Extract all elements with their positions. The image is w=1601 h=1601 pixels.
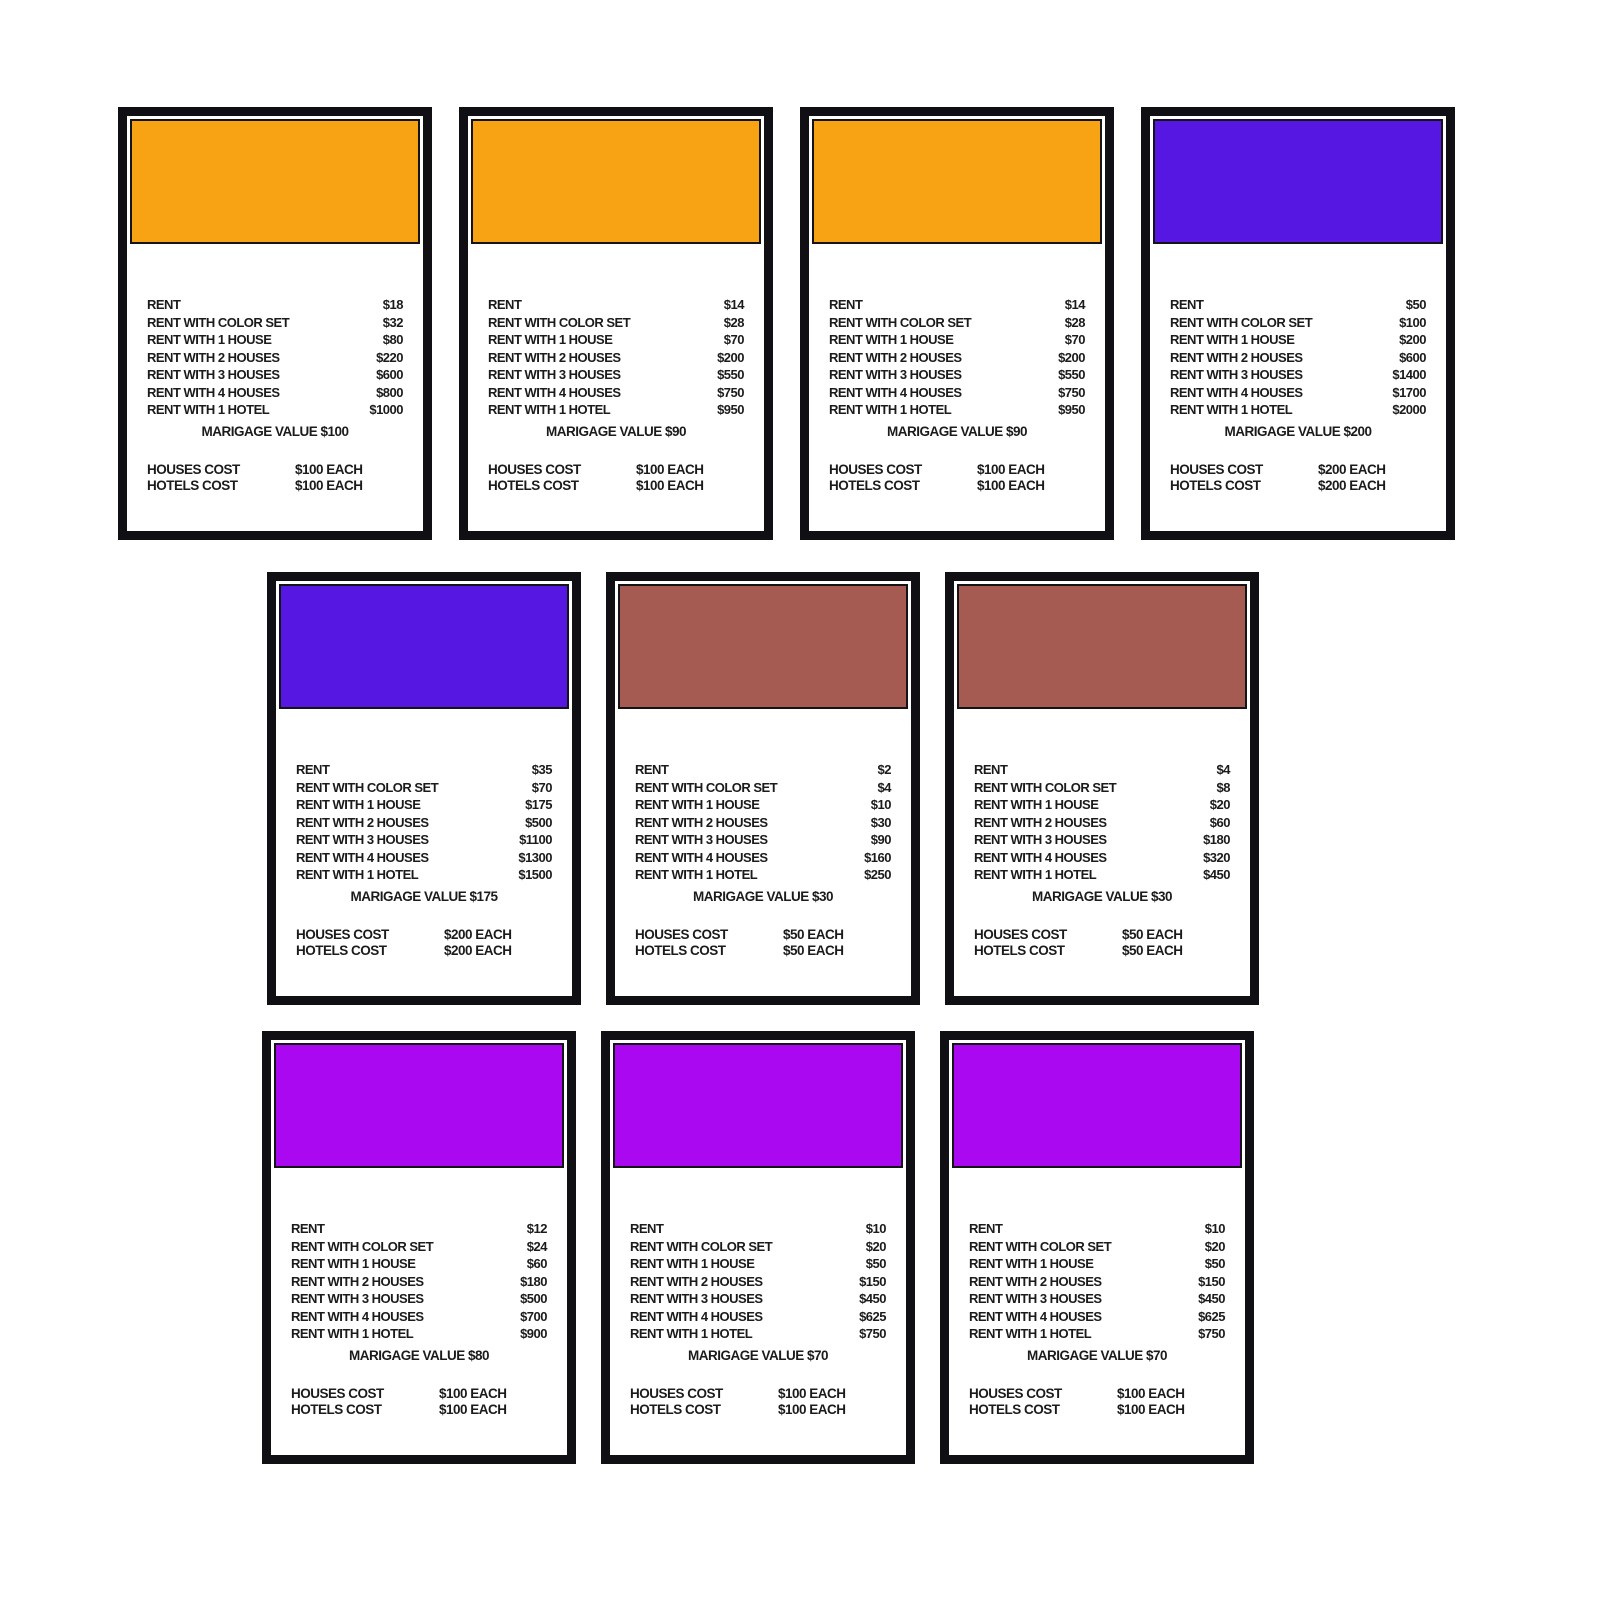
houses-cost-label: HOUSES COST — [635, 927, 783, 944]
mortgage-value-line: MARIGAGE VALUE $175 — [296, 889, 552, 905]
hotels-cost-label: HOTELS COST — [488, 478, 636, 495]
rent-row: RENT WITH COLOR SET $20 — [969, 1238, 1225, 1256]
rent-4-houses-label: RENT WITH 4 HOUSES — [291, 1308, 424, 1326]
rent-row: RENT WITH COLOR SET $20 — [630, 1238, 886, 1256]
houses-cost-value: $100 EACH — [636, 462, 704, 479]
rent-2-houses-value: $150 — [859, 1273, 886, 1291]
card-body: RENT $14 RENT WITH COLOR SET $28 RENT WI… — [468, 244, 764, 495]
rent-row: RENT WITH 4 HOUSES $800 — [147, 384, 403, 402]
rent-row: RENT $4 — [974, 761, 1230, 779]
rent-row: RENT WITH COLOR SET $24 — [291, 1238, 547, 1256]
rent-row: RENT WITH COLOR SET $100 — [1170, 314, 1426, 332]
hotels-cost-label: HOTELS COST — [829, 478, 977, 495]
houses-cost-row: HOUSES COST $50 EACH — [974, 927, 1230, 944]
mortgage-value-line: MARIGAGE VALUE $90 — [488, 424, 744, 440]
rent-value: $35 — [532, 761, 552, 779]
rent-1-hotel-label: RENT WITH 1 HOTEL — [1170, 401, 1292, 419]
rent-color-set-label: RENT WITH COLOR SET — [974, 779, 1116, 797]
rent-4-houses-value: $160 — [864, 849, 891, 867]
rent-row: RENT WITH 3 HOUSES $1400 — [1170, 366, 1426, 384]
rent-1-house-value: $200 — [1399, 331, 1426, 349]
hotels-cost-row: HOTELS COST $100 EACH — [969, 1402, 1225, 1419]
card-body: RENT $14 RENT WITH COLOR SET $28 RENT WI… — [809, 244, 1105, 495]
hotels-cost-label: HOTELS COST — [635, 943, 783, 960]
rent-3-houses-value: $90 — [871, 831, 891, 849]
rent-color-set-label: RENT WITH COLOR SET — [829, 314, 971, 332]
rent-4-houses-value: $1700 — [1392, 384, 1426, 402]
rent-color-set-label: RENT WITH COLOR SET — [1170, 314, 1312, 332]
rent-row: RENT WITH COLOR SET $8 — [974, 779, 1230, 797]
cost-table: HOUSES COST $100 EACH HOTELS COST $100 E… — [829, 462, 1085, 495]
rent-row: RENT WITH 1 HOUSE $10 — [635, 796, 891, 814]
hotels-cost-value: $100 EACH — [439, 1402, 507, 1419]
rent-4-houses-label: RENT WITH 4 HOUSES — [635, 849, 768, 867]
mortgage-value-line: MARIGAGE VALUE $30 — [635, 889, 891, 905]
rent-1-house-label: RENT WITH 1 HOUSE — [291, 1255, 415, 1273]
rent-3-houses-value: $500 — [520, 1290, 547, 1308]
rent-2-houses-value: $600 — [1399, 349, 1426, 367]
rent-row: RENT WITH 3 HOUSES $450 — [630, 1290, 886, 1308]
rent-row: RENT WITH 2 HOUSES $600 — [1170, 349, 1426, 367]
rent-1-hotel-label: RENT WITH 1 HOTEL — [291, 1325, 413, 1343]
rent-row: RENT WITH 2 HOUSES $500 — [296, 814, 552, 832]
hotels-cost-row: HOTELS COST $100 EACH — [291, 1402, 547, 1419]
rent-4-houses-label: RENT WITH 4 HOUSES — [974, 849, 1107, 867]
card-row-1: RENT $18 RENT WITH COLOR SET $32 RENT WI… — [118, 107, 1455, 540]
rent-1-house-value: $10 — [871, 796, 891, 814]
rent-row: RENT WITH 4 HOUSES $160 — [635, 849, 891, 867]
rent-2-houses-label: RENT WITH 2 HOUSES — [296, 814, 429, 832]
rent-1-house-value: $70 — [1065, 331, 1085, 349]
houses-cost-value: $100 EACH — [1117, 1386, 1185, 1403]
rent-color-set-value: $28 — [724, 314, 744, 332]
property-card: RENT $14 RENT WITH COLOR SET $28 RENT WI… — [459, 107, 773, 540]
rent-1-house-label: RENT WITH 1 HOUSE — [630, 1255, 754, 1273]
rent-row: RENT WITH 2 HOUSES $30 — [635, 814, 891, 832]
houses-cost-row: HOUSES COST $200 EACH — [1170, 462, 1426, 479]
rent-row: RENT WITH 1 HOTEL $1000 — [147, 401, 403, 419]
houses-cost-row: HOUSES COST $100 EACH — [488, 462, 744, 479]
rent-table: RENT $35 RENT WITH COLOR SET $70 RENT WI… — [296, 761, 552, 884]
card-body: RENT $4 RENT WITH COLOR SET $8 RENT WITH… — [954, 709, 1250, 960]
rent-row: RENT WITH 1 HOTEL $900 — [291, 1325, 547, 1343]
rent-1-house-label: RENT WITH 1 HOUSE — [147, 331, 271, 349]
houses-cost-row: HOUSES COST $50 EACH — [635, 927, 891, 944]
rent-1-house-label: RENT WITH 1 HOUSE — [488, 331, 612, 349]
rent-row: RENT WITH 4 HOUSES $750 — [488, 384, 744, 402]
rent-1-hotel-value: $750 — [1198, 1325, 1225, 1343]
card-body: RENT $12 RENT WITH COLOR SET $24 RENT WI… — [271, 1168, 567, 1419]
cost-table: HOUSES COST $50 EACH HOTELS COST $50 EAC… — [635, 927, 891, 960]
houses-cost-value: $100 EACH — [778, 1386, 846, 1403]
rent-value: $12 — [527, 1220, 547, 1238]
rent-value: $10 — [1205, 1220, 1225, 1238]
rent-row: RENT WITH 1 HOTEL $750 — [969, 1325, 1225, 1343]
rent-label: RENT — [829, 296, 862, 314]
mortgage-value-line: MARIGAGE VALUE $70 — [969, 1348, 1225, 1364]
rent-1-house-label: RENT WITH 1 HOUSE — [829, 331, 953, 349]
property-card: RENT $12 RENT WITH COLOR SET $24 RENT WI… — [262, 1031, 576, 1464]
hotels-cost-row: HOTELS COST $100 EACH — [829, 478, 1085, 495]
rent-row: RENT WITH 2 HOUSES $150 — [969, 1273, 1225, 1291]
rent-1-hotel-value: $900 — [520, 1325, 547, 1343]
cost-table: HOUSES COST $50 EACH HOTELS COST $50 EAC… — [974, 927, 1230, 960]
rent-1-hotel-value: $1500 — [518, 866, 552, 884]
rent-1-house-value: $80 — [383, 331, 403, 349]
color-band — [471, 119, 761, 244]
property-card: RENT $4 RENT WITH COLOR SET $8 RENT WITH… — [945, 572, 1259, 1005]
rent-row: RENT WITH 3 HOUSES $550 — [488, 366, 744, 384]
card-row-2: RENT $35 RENT WITH COLOR SET $70 RENT WI… — [267, 572, 1259, 1005]
card-row-3: RENT $12 RENT WITH COLOR SET $24 RENT WI… — [262, 1031, 1254, 1464]
property-card: RENT $14 RENT WITH COLOR SET $28 RENT WI… — [800, 107, 1114, 540]
rent-table: RENT $10 RENT WITH COLOR SET $20 RENT WI… — [630, 1220, 886, 1343]
color-band — [274, 1043, 564, 1168]
rent-2-houses-label: RENT WITH 2 HOUSES — [969, 1273, 1102, 1291]
rent-color-set-label: RENT WITH COLOR SET — [488, 314, 630, 332]
rent-row: RENT WITH 2 HOUSES $220 — [147, 349, 403, 367]
hotels-cost-row: HOTELS COST $50 EACH — [635, 943, 891, 960]
rent-2-houses-label: RENT WITH 2 HOUSES — [488, 349, 621, 367]
rent-color-set-value: $4 — [878, 779, 891, 797]
rent-4-houses-label: RENT WITH 4 HOUSES — [296, 849, 429, 867]
rent-row: RENT WITH 4 HOUSES $625 — [630, 1308, 886, 1326]
hotels-cost-value: $100 EACH — [636, 478, 704, 495]
card-body: RENT $10 RENT WITH COLOR SET $20 RENT WI… — [949, 1168, 1245, 1419]
property-card: RENT $2 RENT WITH COLOR SET $4 RENT WITH… — [606, 572, 920, 1005]
color-band — [812, 119, 1102, 244]
houses-cost-label: HOUSES COST — [296, 927, 444, 944]
hotels-cost-value: $100 EACH — [778, 1402, 846, 1419]
rent-1-hotel-label: RENT WITH 1 HOTEL — [147, 401, 269, 419]
rent-row: RENT WITH 1 HOUSE $175 — [296, 796, 552, 814]
rent-row: RENT $35 — [296, 761, 552, 779]
hotels-cost-value: $100 EACH — [1117, 1402, 1185, 1419]
color-band — [618, 584, 908, 709]
rent-1-house-value: $50 — [866, 1255, 886, 1273]
color-band — [130, 119, 420, 244]
rent-3-houses-label: RENT WITH 3 HOUSES — [1170, 366, 1303, 384]
hotels-cost-value: $200 EACH — [1318, 478, 1386, 495]
rent-row: RENT WITH 2 HOUSES $200 — [829, 349, 1085, 367]
rent-3-houses-label: RENT WITH 3 HOUSES — [488, 366, 621, 384]
rent-row: RENT WITH 1 HOUSE $20 — [974, 796, 1230, 814]
color-band — [952, 1043, 1242, 1168]
rent-value: $4 — [1217, 761, 1230, 779]
rent-4-houses-label: RENT WITH 4 HOUSES — [488, 384, 621, 402]
property-card: RENT $50 RENT WITH COLOR SET $100 RENT W… — [1141, 107, 1455, 540]
rent-row: RENT WITH 1 HOTEL $1500 — [296, 866, 552, 884]
rent-1-hotel-value: $250 — [864, 866, 891, 884]
houses-cost-value: $100 EACH — [295, 462, 363, 479]
rent-row: RENT WITH 1 HOUSE $50 — [969, 1255, 1225, 1273]
rent-3-houses-label: RENT WITH 3 HOUSES — [974, 831, 1107, 849]
rent-row: RENT WITH 1 HOTEL $250 — [635, 866, 891, 884]
rent-value: $14 — [724, 296, 744, 314]
rent-1-hotel-value: $950 — [1058, 401, 1085, 419]
rent-table: RENT $2 RENT WITH COLOR SET $4 RENT WITH… — [635, 761, 891, 884]
rent-2-houses-value: $60 — [1210, 814, 1230, 832]
rent-4-houses-label: RENT WITH 4 HOUSES — [630, 1308, 763, 1326]
houses-cost-label: HOUSES COST — [147, 462, 295, 479]
rent-3-houses-value: $550 — [1058, 366, 1085, 384]
rent-3-houses-label: RENT WITH 3 HOUSES — [630, 1290, 763, 1308]
rent-row: RENT WITH 2 HOUSES $60 — [974, 814, 1230, 832]
hotels-cost-row: HOTELS COST $50 EACH — [974, 943, 1230, 960]
rent-color-set-label: RENT WITH COLOR SET — [291, 1238, 433, 1256]
houses-cost-value: $100 EACH — [977, 462, 1045, 479]
hotels-cost-value: $200 EACH — [444, 943, 512, 960]
rent-2-houses-value: $500 — [525, 814, 552, 832]
rent-row: RENT WITH COLOR SET $32 — [147, 314, 403, 332]
card-body: RENT $35 RENT WITH COLOR SET $70 RENT WI… — [276, 709, 572, 960]
property-card: RENT $10 RENT WITH COLOR SET $20 RENT WI… — [601, 1031, 915, 1464]
card-body: RENT $18 RENT WITH COLOR SET $32 RENT WI… — [127, 244, 423, 495]
rent-row: RENT WITH 3 HOUSES $550 — [829, 366, 1085, 384]
houses-cost-row: HOUSES COST $100 EACH — [829, 462, 1085, 479]
rent-4-houses-value: $800 — [376, 384, 403, 402]
rent-4-houses-label: RENT WITH 4 HOUSES — [829, 384, 962, 402]
mortgage-value-line: MARIGAGE VALUE $30 — [974, 889, 1230, 905]
rent-2-houses-label: RENT WITH 2 HOUSES — [635, 814, 768, 832]
rent-row: RENT $50 — [1170, 296, 1426, 314]
rent-3-houses-label: RENT WITH 3 HOUSES — [969, 1290, 1102, 1308]
houses-cost-row: HOUSES COST $100 EACH — [291, 1386, 547, 1403]
rent-row: RENT WITH 3 HOUSES $500 — [291, 1290, 547, 1308]
rent-row: RENT WITH 4 HOUSES $750 — [829, 384, 1085, 402]
rent-2-houses-value: $220 — [376, 349, 403, 367]
hotels-cost-value: $50 EACH — [1122, 943, 1183, 960]
rent-label: RENT — [291, 1220, 324, 1238]
rent-color-set-value: $28 — [1065, 314, 1085, 332]
rent-row: RENT WITH 1 HOUSE $70 — [829, 331, 1085, 349]
houses-cost-row: HOUSES COST $100 EACH — [969, 1386, 1225, 1403]
mortgage-value-line: MARIGAGE VALUE $90 — [829, 424, 1085, 440]
rent-row: RENT WITH COLOR SET $4 — [635, 779, 891, 797]
rent-color-set-value: $8 — [1217, 779, 1230, 797]
rent-color-set-label: RENT WITH COLOR SET — [630, 1238, 772, 1256]
rent-row: RENT $14 — [829, 296, 1085, 314]
rent-row: RENT WITH 1 HOTEL $950 — [829, 401, 1085, 419]
rent-1-house-value: $175 — [525, 796, 552, 814]
rent-3-houses-value: $1100 — [519, 831, 552, 849]
hotels-cost-row: HOTELS COST $100 EACH — [488, 478, 744, 495]
rent-row: RENT WITH 4 HOUSES $625 — [969, 1308, 1225, 1326]
rent-label: RENT — [969, 1220, 1002, 1238]
rent-table: RENT $4 RENT WITH COLOR SET $8 RENT WITH… — [974, 761, 1230, 884]
rent-row: RENT WITH 2 HOUSES $180 — [291, 1273, 547, 1291]
rent-row: RENT WITH 4 HOUSES $700 — [291, 1308, 547, 1326]
rent-4-houses-label: RENT WITH 4 HOUSES — [147, 384, 280, 402]
rent-1-house-value: $70 — [724, 331, 744, 349]
rent-color-set-value: $100 — [1399, 314, 1426, 332]
cost-table: HOUSES COST $200 EACH HOTELS COST $200 E… — [1170, 462, 1426, 495]
rent-label: RENT — [630, 1220, 663, 1238]
rent-label: RENT — [488, 296, 521, 314]
houses-cost-label: HOUSES COST — [630, 1386, 778, 1403]
rent-row: RENT $14 — [488, 296, 744, 314]
rent-value: $14 — [1065, 296, 1085, 314]
rent-row: RENT WITH 1 HOUSE $80 — [147, 331, 403, 349]
rent-label: RENT — [635, 761, 668, 779]
mortgage-value-line: MARIGAGE VALUE $70 — [630, 1348, 886, 1364]
hotels-cost-row: HOTELS COST $200 EACH — [296, 943, 552, 960]
rent-3-houses-value: $1400 — [1392, 366, 1426, 384]
color-band — [613, 1043, 903, 1168]
rent-row: RENT WITH 3 HOUSES $1100 — [296, 831, 552, 849]
houses-cost-value: $200 EACH — [1318, 462, 1386, 479]
mortgage-value-line: MARIGAGE VALUE $100 — [147, 424, 403, 440]
rent-1-hotel-label: RENT WITH 1 HOTEL — [296, 866, 418, 884]
rent-3-houses-label: RENT WITH 3 HOUSES — [829, 366, 962, 384]
rent-color-set-value: $70 — [532, 779, 552, 797]
rent-3-houses-label: RENT WITH 3 HOUSES — [635, 831, 768, 849]
rent-value: $18 — [383, 296, 403, 314]
rent-1-house-value: $20 — [1210, 796, 1230, 814]
rent-value: $2 — [878, 761, 891, 779]
card-body: RENT $2 RENT WITH COLOR SET $4 RENT WITH… — [615, 709, 911, 960]
houses-cost-value: $200 EACH — [444, 927, 512, 944]
rent-1-house-label: RENT WITH 1 HOUSE — [635, 796, 759, 814]
rent-row: RENT WITH 1 HOUSE $70 — [488, 331, 744, 349]
hotels-cost-label: HOTELS COST — [291, 1402, 439, 1419]
rent-1-house-label: RENT WITH 1 HOUSE — [969, 1255, 1093, 1273]
rent-row: RENT WITH COLOR SET $28 — [488, 314, 744, 332]
rent-1-hotel-label: RENT WITH 1 HOTEL — [488, 401, 610, 419]
card-sheet: RENT $18 RENT WITH COLOR SET $32 RENT WI… — [0, 0, 1601, 1601]
rent-1-house-label: RENT WITH 1 HOUSE — [974, 796, 1098, 814]
rent-row: RENT WITH COLOR SET $70 — [296, 779, 552, 797]
hotels-cost-row: HOTELS COST $100 EACH — [630, 1402, 886, 1419]
houses-cost-label: HOUSES COST — [291, 1386, 439, 1403]
rent-row: RENT WITH 1 HOTEL $950 — [488, 401, 744, 419]
rent-color-set-value: $24 — [527, 1238, 547, 1256]
hotels-cost-label: HOTELS COST — [296, 943, 444, 960]
rent-1-house-value: $60 — [527, 1255, 547, 1273]
rent-color-set-label: RENT WITH COLOR SET — [296, 779, 438, 797]
rent-row: RENT WITH 3 HOUSES $90 — [635, 831, 891, 849]
mortgage-value-line: MARIGAGE VALUE $80 — [291, 1348, 547, 1364]
card-body: RENT $10 RENT WITH COLOR SET $20 RENT WI… — [610, 1168, 906, 1419]
rent-table: RENT $14 RENT WITH COLOR SET $28 RENT WI… — [829, 296, 1085, 419]
rent-3-houses-value: $450 — [859, 1290, 886, 1308]
cost-table: HOUSES COST $100 EACH HOTELS COST $100 E… — [291, 1386, 547, 1419]
rent-value: $10 — [866, 1220, 886, 1238]
rent-1-hotel-value: $1000 — [369, 401, 403, 419]
rent-4-houses-value: $625 — [1198, 1308, 1225, 1326]
houses-cost-label: HOUSES COST — [488, 462, 636, 479]
rent-4-houses-label: RENT WITH 4 HOUSES — [1170, 384, 1303, 402]
rent-3-houses-value: $180 — [1203, 831, 1230, 849]
rent-3-houses-label: RENT WITH 3 HOUSES — [296, 831, 429, 849]
rent-3-houses-value: $600 — [376, 366, 403, 384]
rent-2-houses-value: $200 — [717, 349, 744, 367]
hotels-cost-label: HOTELS COST — [974, 943, 1122, 960]
rent-color-set-value: $20 — [866, 1238, 886, 1256]
color-band — [1153, 119, 1443, 244]
cost-table: HOUSES COST $200 EACH HOTELS COST $200 E… — [296, 927, 552, 960]
houses-cost-label: HOUSES COST — [1170, 462, 1318, 479]
cost-table: HOUSES COST $100 EACH HOTELS COST $100 E… — [147, 462, 403, 495]
rent-4-houses-value: $1300 — [518, 849, 552, 867]
rent-color-set-label: RENT WITH COLOR SET — [969, 1238, 1111, 1256]
houses-cost-row: HOUSES COST $200 EACH — [296, 927, 552, 944]
rent-2-houses-value: $180 — [520, 1273, 547, 1291]
rent-table: RENT $10 RENT WITH COLOR SET $20 RENT WI… — [969, 1220, 1225, 1343]
rent-row: RENT WITH 1 HOUSE $200 — [1170, 331, 1426, 349]
rent-1-hotel-value: $950 — [717, 401, 744, 419]
rent-2-houses-value: $150 — [1198, 1273, 1225, 1291]
rent-row: RENT WITH 3 HOUSES $180 — [974, 831, 1230, 849]
rent-2-houses-label: RENT WITH 2 HOUSES — [829, 349, 962, 367]
houses-cost-row: HOUSES COST $100 EACH — [147, 462, 403, 479]
rent-3-houses-value: $450 — [1198, 1290, 1225, 1308]
color-band — [957, 584, 1247, 709]
rent-2-houses-label: RENT WITH 2 HOUSES — [291, 1273, 424, 1291]
rent-2-houses-value: $200 — [1058, 349, 1085, 367]
rent-row: RENT WITH 3 HOUSES $450 — [969, 1290, 1225, 1308]
property-card: RENT $18 RENT WITH COLOR SET $32 RENT WI… — [118, 107, 432, 540]
rent-color-set-value: $32 — [383, 314, 403, 332]
rent-value: $50 — [1406, 296, 1426, 314]
rent-row: RENT $10 — [630, 1220, 886, 1238]
rent-row: RENT WITH 4 HOUSES $1300 — [296, 849, 552, 867]
houses-cost-value: $100 EACH — [439, 1386, 507, 1403]
houses-cost-label: HOUSES COST — [969, 1386, 1117, 1403]
hotels-cost-value: $50 EACH — [783, 943, 844, 960]
rent-row: RENT WITH 1 HOTEL $450 — [974, 866, 1230, 884]
rent-row: RENT WITH 1 HOTEL $750 — [630, 1325, 886, 1343]
rent-1-hotel-value: $750 — [859, 1325, 886, 1343]
rent-1-hotel-label: RENT WITH 1 HOTEL — [630, 1325, 752, 1343]
rent-1-hotel-label: RENT WITH 1 HOTEL — [974, 866, 1096, 884]
card-body: RENT $50 RENT WITH COLOR SET $100 RENT W… — [1150, 244, 1446, 495]
rent-color-set-label: RENT WITH COLOR SET — [635, 779, 777, 797]
rent-row: RENT $2 — [635, 761, 891, 779]
rent-row: RENT WITH COLOR SET $28 — [829, 314, 1085, 332]
rent-row: RENT WITH 2 HOUSES $200 — [488, 349, 744, 367]
rent-3-houses-label: RENT WITH 3 HOUSES — [147, 366, 280, 384]
houses-cost-label: HOUSES COST — [974, 927, 1122, 944]
rent-row: RENT WITH 1 HOUSE $60 — [291, 1255, 547, 1273]
hotels-cost-label: HOTELS COST — [1170, 478, 1318, 495]
rent-row: RENT WITH 1 HOUSE $50 — [630, 1255, 886, 1273]
rent-row: RENT WITH 3 HOUSES $600 — [147, 366, 403, 384]
rent-2-houses-value: $30 — [871, 814, 891, 832]
rent-4-houses-value: $750 — [717, 384, 744, 402]
rent-2-houses-label: RENT WITH 2 HOUSES — [630, 1273, 763, 1291]
rent-4-houses-value: $320 — [1203, 849, 1230, 867]
hotels-cost-label: HOTELS COST — [630, 1402, 778, 1419]
mortgage-value-line: MARIGAGE VALUE $200 — [1170, 424, 1426, 440]
houses-cost-row: HOUSES COST $100 EACH — [630, 1386, 886, 1403]
houses-cost-value: $50 EACH — [1122, 927, 1183, 944]
rent-3-houses-value: $550 — [717, 366, 744, 384]
rent-2-houses-label: RENT WITH 2 HOUSES — [974, 814, 1107, 832]
rent-1-house-value: $50 — [1205, 1255, 1225, 1273]
rent-label: RENT — [147, 296, 180, 314]
rent-1-house-label: RENT WITH 1 HOUSE — [296, 796, 420, 814]
rent-table: RENT $50 RENT WITH COLOR SET $100 RENT W… — [1170, 296, 1426, 419]
rent-1-hotel-value: $450 — [1203, 866, 1230, 884]
rent-color-set-label: RENT WITH COLOR SET — [147, 314, 289, 332]
rent-table: RENT $18 RENT WITH COLOR SET $32 RENT WI… — [147, 296, 403, 419]
rent-row: RENT WITH 4 HOUSES $1700 — [1170, 384, 1426, 402]
hotels-cost-value: $100 EACH — [977, 478, 1045, 495]
rent-row: RENT WITH 4 HOUSES $320 — [974, 849, 1230, 867]
rent-table: RENT $12 RENT WITH COLOR SET $24 RENT WI… — [291, 1220, 547, 1343]
rent-row: RENT WITH 1 HOTEL $2000 — [1170, 401, 1426, 419]
